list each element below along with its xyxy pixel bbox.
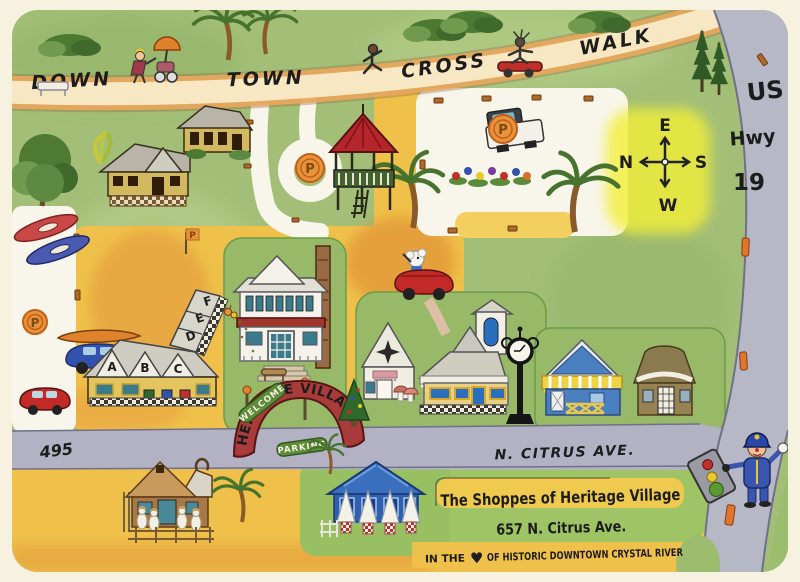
shop-letter-a: A [107, 360, 117, 374]
compass-w: W [659, 196, 678, 216]
compass-n: N [619, 153, 633, 173]
parking-letter: P [31, 316, 40, 330]
parking-circle-west: P [23, 310, 47, 334]
map-canvas: DOWN TOWN CROSS WALK [0, 0, 800, 582]
parking-letter: P [498, 123, 508, 138]
parking-letter: P [189, 231, 196, 241]
hwy-us-label: US [745, 75, 785, 107]
parking-circle-north-lot: P [489, 115, 517, 143]
shop-letter-b: B [140, 361, 149, 375]
info-tagline-pre: IN THE [425, 553, 465, 566]
brown-building [634, 346, 695, 415]
north-parking-lot [416, 88, 628, 238]
compass-rose: E N S W [606, 108, 710, 234]
hwy-hwy-label: Hwy [729, 125, 777, 150]
compass-e: E [659, 116, 671, 136]
parking-circle-lane: P [296, 154, 324, 182]
crosswalk-label-town: TOWN [226, 67, 305, 92]
compass-s: S [695, 153, 707, 173]
heart-icon: ♥ [470, 549, 484, 567]
hwy-19-label: 19 [733, 170, 765, 196]
shop-letter-c: C [174, 362, 183, 376]
heritage-village-map: DOWN TOWN CROSS WALK [0, 0, 800, 582]
parking-letter: P [305, 162, 315, 177]
info-address: 657 N. Citrus Ave. [496, 517, 626, 538]
